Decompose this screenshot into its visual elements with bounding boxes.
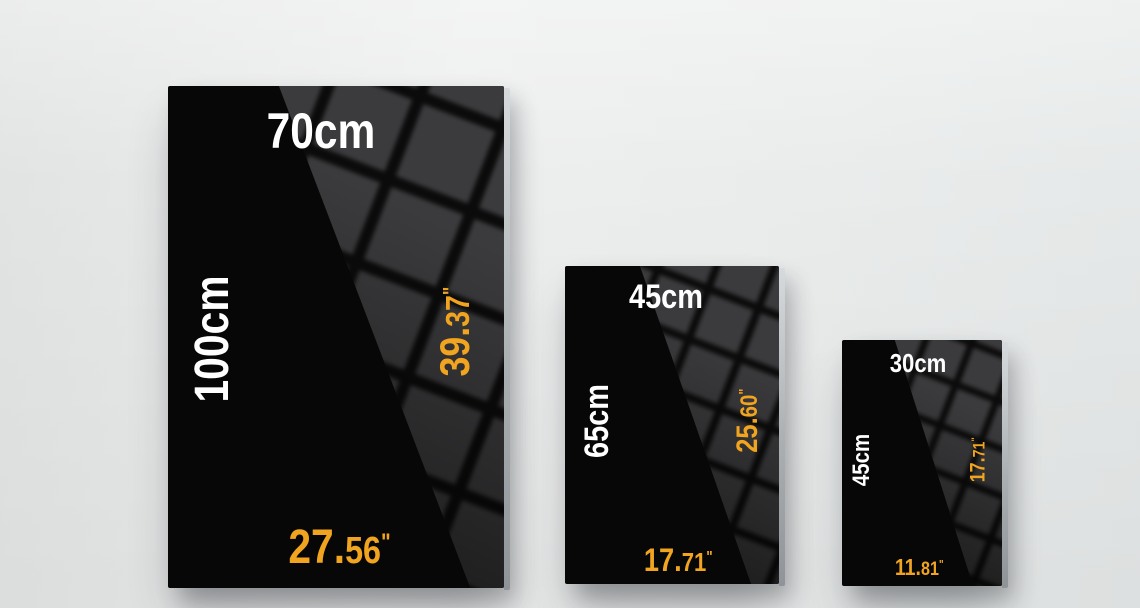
- width-cm-label: 45cm: [629, 280, 703, 314]
- panel-face: 45cm 65cm 25.60" 17.71": [565, 266, 779, 584]
- height-inches-label: 25.60": [733, 389, 763, 453]
- inch-mark: ": [970, 438, 982, 442]
- inches-whole: 39.: [431, 327, 478, 377]
- inch-mark: ": [707, 549, 713, 566]
- height-cm-label: 45cm: [850, 434, 874, 486]
- size-panel-30x45: 30cm 45cm 17.71" 11.81": [842, 340, 1002, 586]
- inches-fraction: 71: [970, 442, 989, 458]
- height-cm-label: 100cm: [189, 275, 237, 402]
- width-inches-label: 27.56": [289, 524, 390, 572]
- inches-fraction: 81: [921, 559, 939, 580]
- size-panel-70x100: 70cm 100cm 39.37" 27.56": [168, 86, 504, 588]
- inches-whole: 17.: [644, 542, 682, 578]
- inches-whole: 25.: [731, 417, 764, 452]
- inches-fraction: 71: [682, 547, 707, 577]
- inches-fraction: 60: [736, 395, 763, 418]
- panel-face: 30cm 45cm 17.71" 11.81": [842, 340, 1002, 586]
- width-cm-label: 30cm: [890, 350, 947, 376]
- inches-fraction: 37: [440, 295, 477, 327]
- height-inches-label: 39.37": [434, 288, 476, 377]
- inch-mark: ": [439, 288, 462, 296]
- panel-face: 70cm 100cm 39.37" 27.56": [168, 86, 504, 588]
- width-cm-label: 70cm: [267, 106, 376, 156]
- size-comparison-scene: 70cm 100cm 39.37" 27.56" 45cm 65cm 25.60…: [0, 0, 1140, 608]
- size-panel-45x65: 45cm 65cm 25.60" 17.71": [565, 266, 779, 584]
- width-inches-label: 11.81": [895, 556, 943, 579]
- panel-side-edge: [504, 88, 510, 590]
- inches-whole: 17.: [967, 457, 990, 482]
- inch-mark: ": [939, 560, 943, 572]
- inches-whole: 11.: [895, 554, 921, 580]
- width-inches-label: 17.71": [644, 544, 712, 576]
- inch-mark: ": [736, 389, 753, 394]
- height-cm-label: 65cm: [580, 384, 614, 458]
- inch-mark: ": [381, 529, 390, 556]
- inches-whole: 27.: [289, 521, 346, 574]
- panel-side-edge: [779, 268, 785, 586]
- height-inches-label: 17.71": [968, 438, 989, 482]
- inches-fraction: 56: [345, 530, 381, 572]
- panel-side-edge: [1002, 342, 1008, 588]
